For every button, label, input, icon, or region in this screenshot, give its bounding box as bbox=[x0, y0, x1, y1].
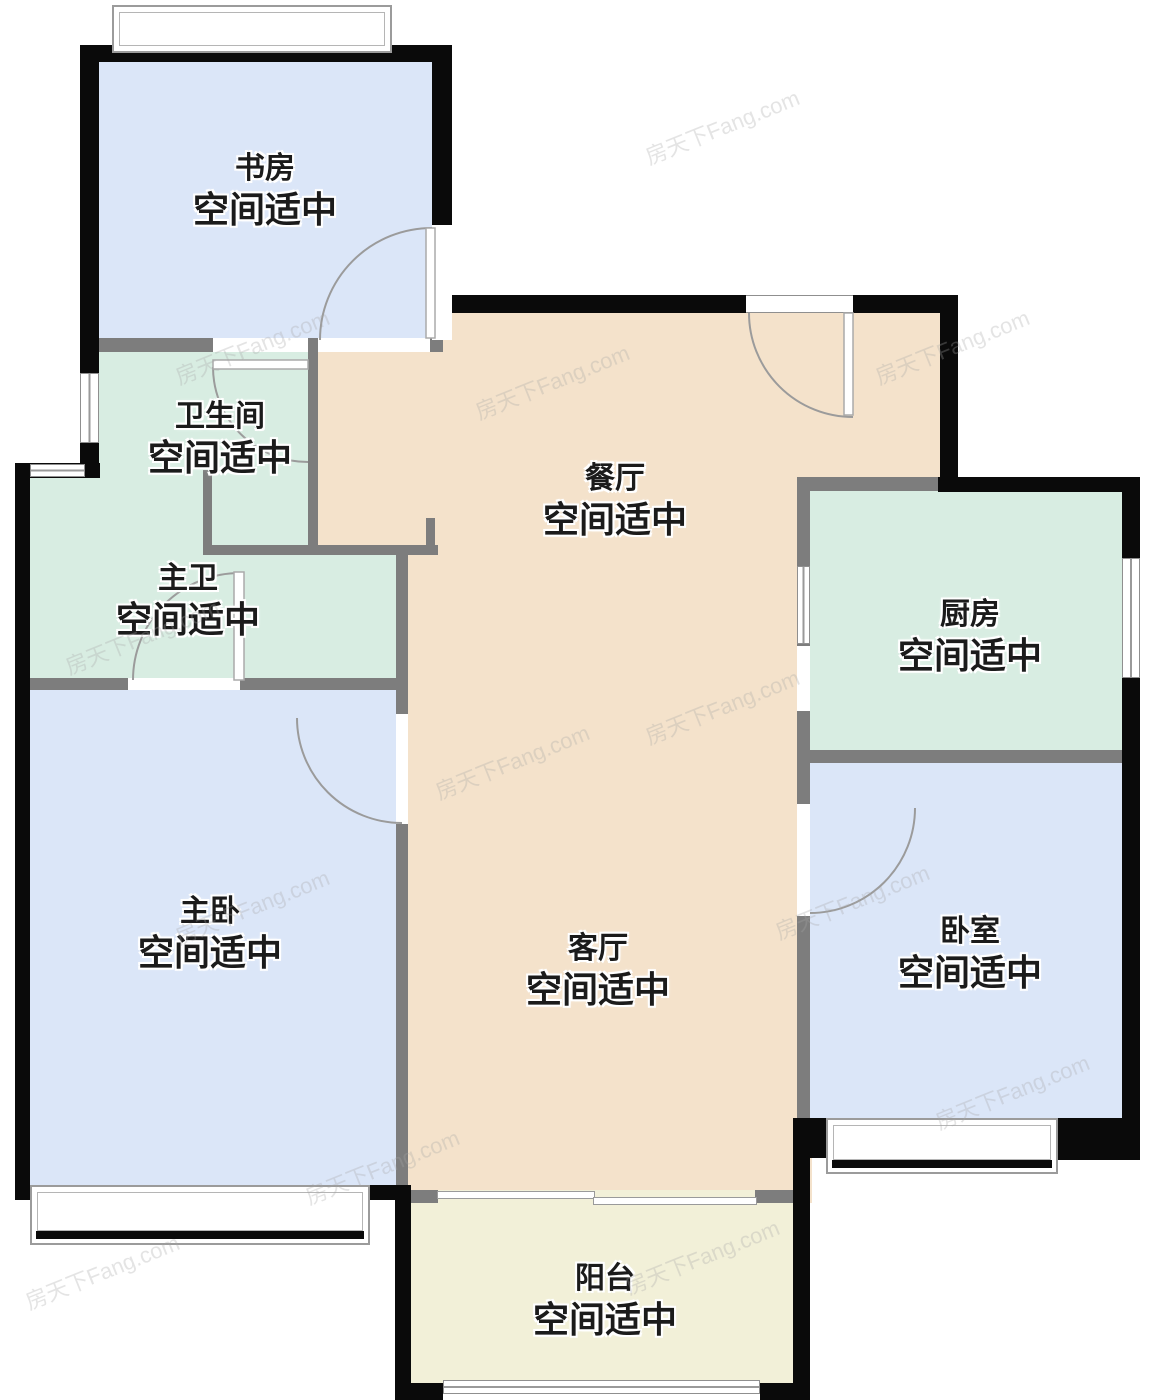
room-label-master-bedroom: 主卧 空间适中 bbox=[138, 893, 282, 975]
room-note-bedroom: 空间适中 bbox=[898, 951, 1042, 995]
entry-door-leaf bbox=[844, 313, 853, 415]
room-name-bedroom: 卧室 bbox=[898, 913, 1042, 951]
room-note-study: 空间适中 bbox=[193, 188, 337, 232]
room-note-balcony: 空间适中 bbox=[533, 1298, 677, 1342]
room-label-master-bath: 主卫 空间适中 bbox=[116, 560, 260, 642]
bathroom-door-leaf bbox=[213, 360, 308, 369]
room-name-master-bath: 主卫 bbox=[116, 560, 260, 598]
room-note-master-bath: 空间适中 bbox=[116, 598, 260, 642]
study-door-arc bbox=[320, 228, 432, 340]
room-note-living: 空间适中 bbox=[526, 968, 670, 1012]
door-swing-layer bbox=[0, 0, 1149, 1400]
bedroom-door-arc bbox=[810, 808, 915, 913]
room-label-bedroom: 卧室 空间适中 bbox=[898, 913, 1042, 995]
room-name-living: 客厅 bbox=[526, 930, 670, 968]
room-label-balcony: 阳台 空间适中 bbox=[533, 1260, 677, 1342]
room-name-bathroom: 卫生间 bbox=[148, 398, 292, 436]
room-label-study: 书房 空间适中 bbox=[193, 150, 337, 232]
room-name-master-bedroom: 主卧 bbox=[138, 893, 282, 931]
room-name-kitchen: 厨房 bbox=[898, 596, 1042, 634]
room-note-master-bedroom: 空间适中 bbox=[138, 931, 282, 975]
room-name-dining: 餐厅 bbox=[543, 460, 687, 498]
room-name-balcony: 阳台 bbox=[533, 1260, 677, 1298]
room-label-living: 客厅 空间适中 bbox=[526, 930, 670, 1012]
room-label-bathroom: 卫生间 空间适中 bbox=[148, 398, 292, 480]
room-note-kitchen: 空间适中 bbox=[898, 634, 1042, 678]
room-label-kitchen: 厨房 空间适中 bbox=[898, 596, 1042, 678]
study-door-leaf bbox=[426, 228, 435, 338]
room-note-bathroom: 空间适中 bbox=[148, 436, 292, 480]
masterbed-door-arc bbox=[297, 718, 402, 823]
entry-door-arc bbox=[749, 313, 853, 417]
room-note-dining: 空间适中 bbox=[543, 498, 687, 542]
room-name-study: 书房 bbox=[193, 150, 337, 188]
room-label-dining: 餐厅 空间适中 bbox=[543, 460, 687, 542]
floorplan: 书房 空间适中 卫生间 空间适中 主卫 空间适中 餐厅 空间适中 厨房 空间适中… bbox=[0, 0, 1149, 1400]
